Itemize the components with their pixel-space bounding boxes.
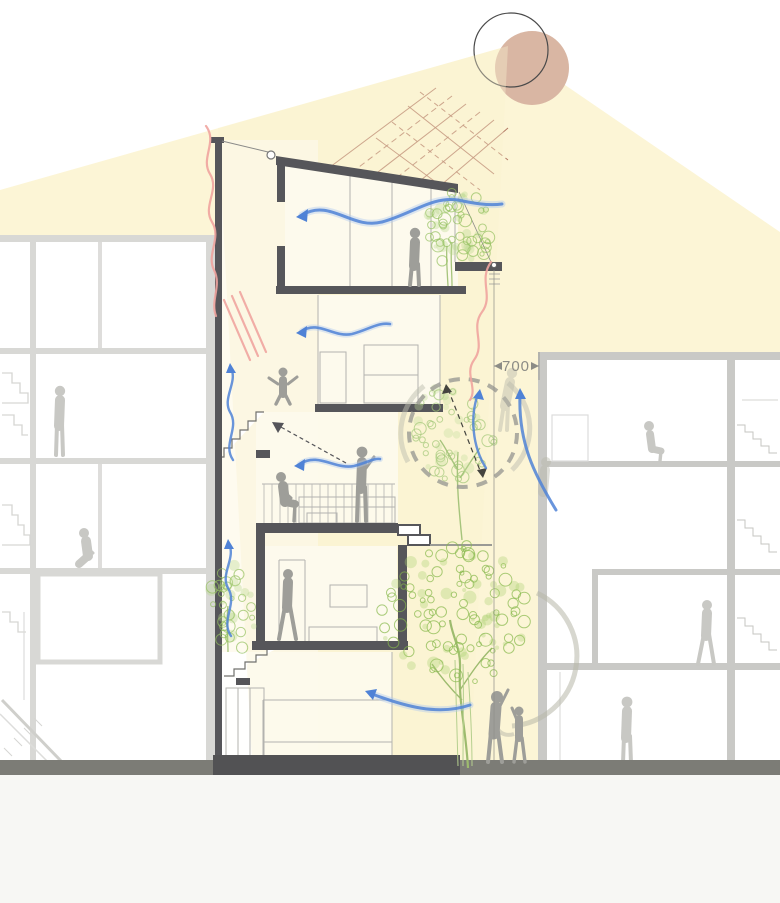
section-diagram: 700: [0, 0, 780, 903]
ground-line: [0, 755, 780, 903]
house-ground-slab: [213, 755, 460, 775]
right-neighbor-building: [538, 352, 780, 765]
left-lower-room: [38, 574, 160, 662]
ground-floor-slab: [252, 641, 408, 650]
dimension-label: 700: [502, 358, 530, 375]
section-diagram-canvas: 700: [0, 0, 780, 903]
mezzanine-slab: [256, 523, 398, 533]
right-roof-slab: [538, 352, 780, 360]
second-floor-slab: [315, 404, 443, 412]
cable-pulley: [267, 151, 275, 159]
left-neighbor-building: [0, 235, 215, 766]
top-floor-slab: [276, 286, 466, 294]
